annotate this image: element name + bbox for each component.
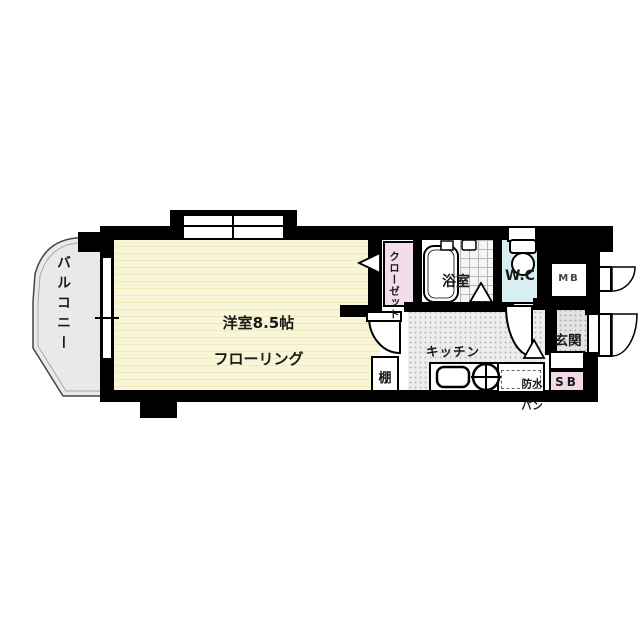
meter-box-label: MB: [552, 273, 586, 284]
floorplan-canvas: MB SB 棚 防水 パン: [0, 0, 640, 640]
top-window-tick: [232, 212, 234, 238]
western-room-label-line2: フローリング: [213, 350, 303, 368]
wc-top-niche: [507, 226, 537, 242]
wall-balcony-top-stub: [78, 232, 114, 252]
kitchen-label: キッチン: [420, 341, 486, 360]
wall-top-right-corner: [600, 226, 613, 252]
wall-bottom-bump: [140, 402, 177, 418]
bathroom-label: 浴室: [430, 271, 482, 291]
mb-door-swing: [612, 267, 635, 291]
shelf-label: 棚: [373, 367, 397, 386]
left-window-tick: [95, 317, 119, 319]
wall-closet-bath: [413, 226, 422, 312]
entrance-step: [549, 351, 585, 370]
balcony-label: バルコニー: [53, 255, 73, 385]
entrance-door-leaf: [598, 313, 612, 357]
meter-box: MB: [552, 264, 586, 296]
western-room-label-line1: 洋室8.5帖: [223, 314, 295, 332]
entrance-label: 玄関: [547, 329, 589, 349]
western-room-label: 洋室8.5帖 フローリング: [148, 296, 348, 386]
shoe-box-label: SB: [551, 375, 583, 389]
waterproof-pan-box: 防水 パン: [497, 362, 545, 393]
waterproof-pan-label-line2: パン: [521, 400, 543, 412]
wall-bath-wc: [493, 226, 502, 312]
mb-door-leaf: [598, 266, 612, 292]
waterproof-pan-label: 防水 パン: [499, 368, 543, 423]
entrance-door-swing: [612, 314, 637, 356]
waterproof-pan-label-line1: 防水: [521, 378, 542, 390]
top-window: [182, 214, 285, 240]
closet-label: クローゼット: [387, 251, 400, 295]
wc-label: W.C: [502, 268, 538, 284]
shelf-box: 棚: [371, 356, 399, 392]
wall-room-right: [368, 226, 382, 314]
shoe-box: SB: [549, 370, 585, 392]
left-window: [101, 256, 113, 360]
